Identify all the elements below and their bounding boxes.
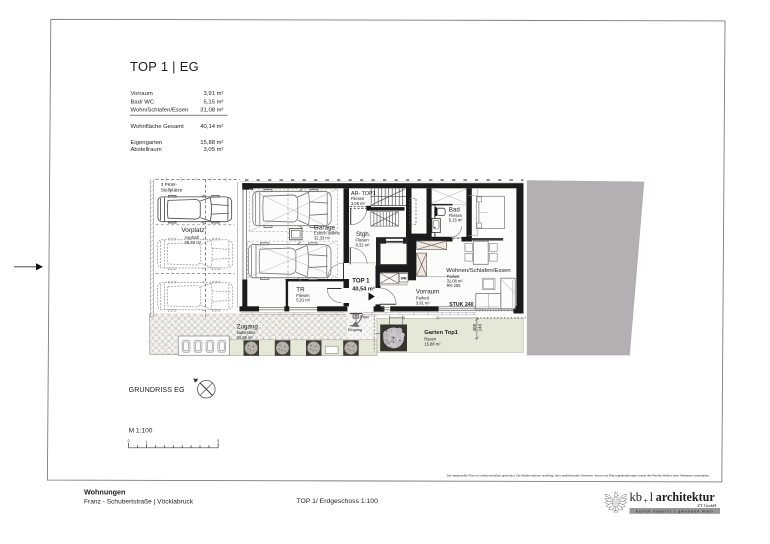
- svg-text:40,54 m²: 40,54 m²: [352, 285, 375, 292]
- svg-text:Eingang: Eingang: [348, 328, 362, 332]
- svg-text:ZT GmbH: ZT GmbH: [697, 503, 717, 508]
- svg-text:Vorraum: Vorraum: [416, 288, 439, 295]
- svg-text:TOP 1: TOP 1: [352, 278, 370, 284]
- svg-text:Vorraum: Vorraum: [131, 91, 153, 97]
- svg-text:Wohnen/Schlafen/Essen: Wohnen/Schlafen/Essen: [446, 268, 510, 274]
- svg-text:kb: kb: [630, 490, 643, 504]
- svg-text:Stellplätze: Stellplätze: [161, 187, 183, 192]
- svg-text:5,01 m²: 5,01 m²: [296, 298, 311, 303]
- svg-text:STUK 240: STUK 240: [449, 302, 473, 308]
- svg-text:Rigol: Rigol: [360, 315, 369, 319]
- svg-text:31,08 m²: 31,08 m²: [200, 108, 223, 114]
- svg-text:3,91 m²: 3,91 m²: [204, 91, 224, 97]
- svg-text:5,15 m²: 5,15 m²: [449, 218, 464, 223]
- svg-text:15,88 m²: 15,88 m²: [424, 341, 441, 346]
- svg-text:Eigengarten: Eigengarten: [131, 140, 163, 146]
- svg-text:Wohnfläche Gesamt: Wohnfläche Gesamt: [131, 124, 185, 130]
- svg-text:0: 0: [128, 439, 130, 443]
- svg-text:M 1:100: M 1:100: [129, 428, 153, 435]
- svg-text:40,14 m²: 40,14 m²: [200, 124, 223, 130]
- svg-text:l: l: [650, 490, 654, 504]
- svg-text:1: 1: [146, 440, 148, 444]
- svg-text:RH 255: RH 255: [447, 283, 462, 288]
- svg-text:Franz - Schubertstraße | Vöckl: Franz - Schubertstraße | Vöcklabruck: [84, 499, 194, 506]
- svg-text:Abstellraum: Abstellraum: [131, 147, 162, 153]
- svg-text:8,32 m²: 8,32 m²: [356, 242, 371, 247]
- svg-text:3,05 m²: 3,05 m²: [204, 147, 224, 153]
- svg-text:26,56 m²: 26,56 m²: [237, 335, 254, 340]
- svg-text:kaindl badertz | gmunden wien: kaindl badertz | gmunden wien: [636, 509, 714, 513]
- svg-text:400: 400: [472, 323, 477, 331]
- svg-text:Wohnungen: Wohnungen: [84, 488, 125, 497]
- svg-text:Der dargestellte Plan ist urhe: Der dargestellte Plan ist urheberrechtli…: [447, 474, 710, 478]
- svg-text:Wohn/Schlafen/Essen: Wohn/Schlafen/Essen: [131, 108, 189, 114]
- svg-text:Garten Top1: Garten Top1: [424, 330, 458, 336]
- svg-text:15,88 m²: 15,88 m²: [200, 140, 223, 146]
- svg-text:TOP 1 | EG: TOP 1 | EG: [130, 59, 199, 74]
- svg-text:5,15 m²: 5,15 m²: [204, 99, 224, 105]
- svg-text:32,33 m²: 32,33 m²: [314, 236, 331, 241]
- svg-text:Vorplatz: Vorplatz: [181, 227, 204, 234]
- svg-text:5: 5: [217, 439, 219, 443]
- svg-text:240: 240: [478, 323, 483, 331]
- svg-text:3 PKW-: 3 PKW-: [161, 182, 178, 187]
- svg-text:GRUNDRISS EG: GRUNDRISS EG: [129, 386, 185, 394]
- svg-text:architektur: architektur: [656, 490, 716, 504]
- svg-text:3,05 m²: 3,05 m²: [351, 201, 366, 206]
- svg-text:+: +: [643, 495, 648, 505]
- svg-text:Bad/ WC: Bad/ WC: [131, 99, 155, 105]
- svg-text:WM: WM: [401, 276, 407, 280]
- svg-text:3,91 m²: 3,91 m²: [416, 300, 431, 305]
- svg-text:TOP 1/ Erdgeschoss 1:100: TOP 1/ Erdgeschoss 1:100: [297, 498, 379, 505]
